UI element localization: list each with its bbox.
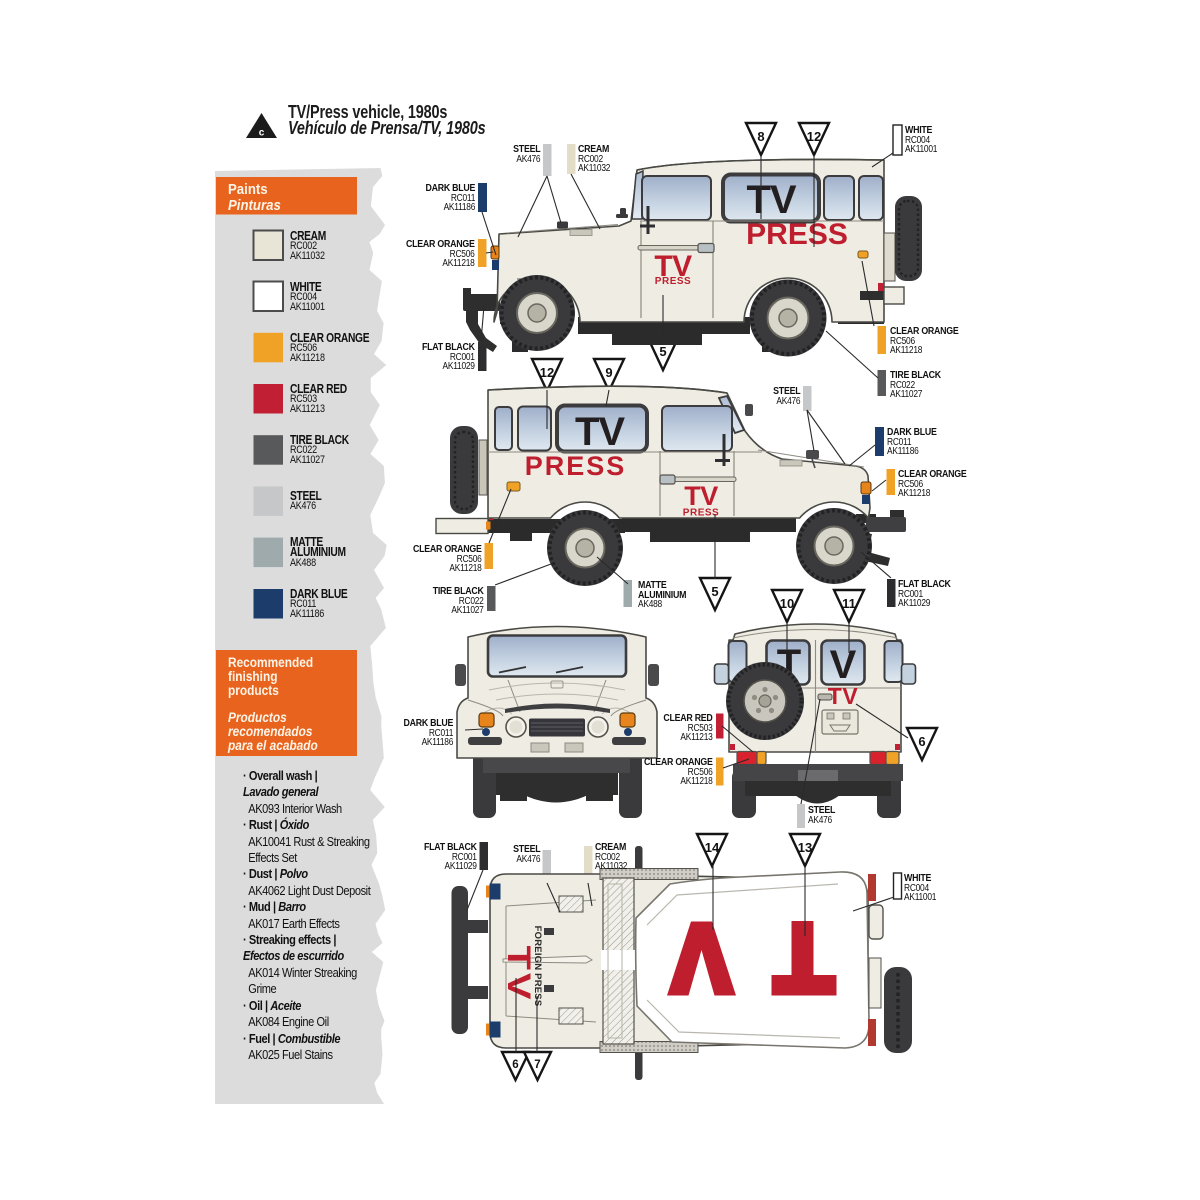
svg-text:PRESS: PRESS — [655, 276, 691, 287]
svg-text:14: 14 — [705, 840, 720, 855]
svg-text:5: 5 — [659, 344, 666, 359]
svg-text:9: 9 — [605, 365, 612, 380]
svg-text:13: 13 — [798, 840, 812, 855]
svg-text:PRESS: PRESS — [746, 218, 848, 251]
svg-text:8: 8 — [757, 129, 764, 144]
svg-text:c: c — [259, 128, 265, 139]
svg-text:7: 7 — [534, 1059, 540, 1071]
svg-text:12: 12 — [807, 129, 821, 144]
svg-text:TV: TV — [746, 178, 796, 222]
svg-text:12: 12 — [540, 365, 554, 380]
svg-text:PRESS: PRESS — [683, 508, 719, 519]
svg-text:6: 6 — [512, 1059, 518, 1071]
svg-text:10: 10 — [780, 596, 794, 611]
svg-text:11: 11 — [842, 596, 856, 611]
svg-text:TV: TV — [684, 481, 718, 511]
svg-text:PRESS: PRESS — [525, 451, 627, 481]
svg-text:6: 6 — [918, 734, 925, 749]
svg-text:TV: TV — [575, 410, 625, 454]
svg-text:5: 5 — [711, 584, 718, 599]
svg-text:V: V — [830, 643, 857, 687]
svg-text:FOREIGN PRESS: FOREIGN PRESS — [532, 926, 543, 1007]
